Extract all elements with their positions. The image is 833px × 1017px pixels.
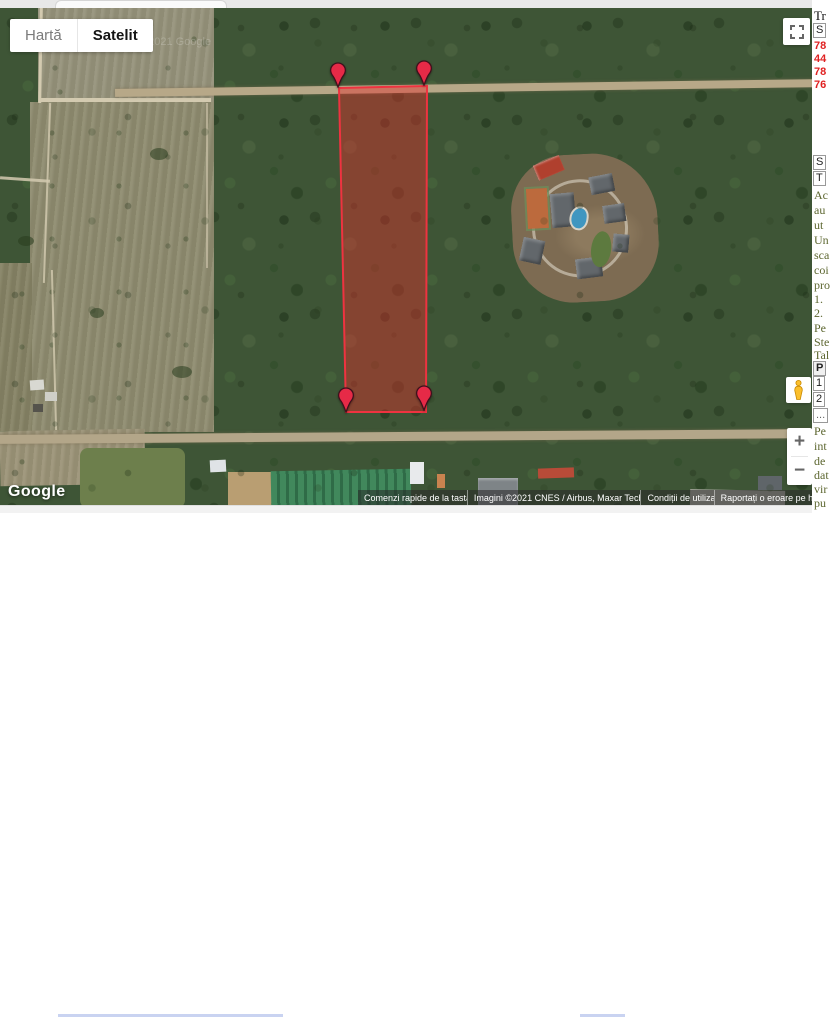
pegman-button[interactable] [786, 377, 811, 403]
page-top-strip [0, 0, 812, 8]
table-header-cell: T [813, 171, 826, 186]
tree-clump [90, 308, 104, 318]
terms-link[interactable]: Condiții de utilizare [640, 490, 713, 505]
small-building [30, 380, 45, 391]
small-building [437, 474, 445, 488]
small-building-roof [33, 404, 43, 412]
report-error-link[interactable]: Raportați o eroare pe hartă [714, 490, 812, 505]
corner-marker-bottom-right[interactable] [416, 385, 433, 411]
small-building [45, 392, 57, 401]
pegman-icon [792, 380, 805, 400]
map-type-control: Hartă Satelit [10, 19, 153, 52]
tree-clump [172, 366, 192, 378]
page-top-tab [55, 0, 227, 8]
farm-field-main [30, 102, 214, 432]
zoom-out-button[interactable]: − [787, 457, 812, 485]
map-canvas[interactable]: ©2021 Google Hartă Satelit + − Google Co… [0, 8, 812, 505]
green-field-bottom [80, 448, 185, 505]
table-header-cell: S [813, 155, 826, 170]
panel-text-fragment: coi [814, 263, 829, 278]
panel-text-fragment: ut [814, 218, 823, 233]
fullscreen-button[interactable] [783, 18, 810, 45]
estate-building [602, 203, 626, 224]
zoom-control: + − [787, 428, 812, 485]
page-below-map[interactable] [0, 505, 812, 513]
panel-text-fragment: au [814, 203, 825, 218]
google-logo[interactable]: Google [8, 483, 66, 501]
map-type-satellite-button[interactable]: Satelit [77, 19, 153, 52]
panel-text-fragment: int [814, 439, 827, 454]
table-row-cell: ... [813, 408, 828, 423]
corner-marker-bottom-left[interactable] [338, 387, 355, 413]
panel-text-fragment: dat [814, 468, 829, 483]
table-value-red: 76 [814, 79, 826, 91]
panel-text-fragment: sca [814, 248, 829, 263]
dark-building [758, 476, 782, 490]
dirt-path-horizontal [39, 98, 211, 102]
keyboard-shortcuts-link[interactable]: Comenzi rapide de la tastatură [358, 490, 467, 505]
table-value-red: 78 [814, 40, 826, 52]
estate-building [612, 233, 630, 252]
zoom-in-button[interactable]: + [787, 428, 812, 456]
panel-text-fragment: Pe [814, 321, 826, 336]
dirt-yard [228, 472, 272, 505]
panel-text-fragment: pu [814, 496, 826, 511]
panel-title-fragment: Tr [814, 8, 826, 24]
panel-text-fragment: pro [814, 278, 830, 293]
table-row-cell: 2 [813, 392, 825, 407]
imagery-credit: Imagini ©2021 CNES / Airbus, Maxar Techn… [467, 490, 641, 505]
table-row-cell: 1 [813, 376, 825, 391]
farm-field-left [0, 263, 32, 431]
fullscreen-icon [790, 25, 804, 39]
small-building [410, 462, 424, 484]
field-boundary-path [206, 103, 208, 268]
panel-text-fragment: Pe [814, 424, 826, 439]
right-panel-clipped: Tr S 78 44 78 76 S T Ac au ut Un sca coi… [812, 0, 833, 513]
panel-text-fragment: 1. [814, 292, 823, 307]
corner-marker-top-right[interactable] [416, 60, 433, 86]
small-building [210, 460, 227, 473]
tree-clump [18, 236, 34, 246]
table-header-cell: P [813, 361, 826, 376]
table-value-red: 78 [814, 66, 826, 78]
panel-text-fragment: Un [814, 233, 829, 248]
red-roof-long-building [538, 467, 574, 478]
panel-text-fragment: Ac [814, 188, 828, 203]
panel-text-fragment: de [814, 454, 825, 469]
table-value-red: 44 [814, 53, 826, 65]
tree-clump [150, 148, 168, 160]
estate-compound [508, 150, 662, 305]
estate-building [519, 237, 546, 265]
tennis-court [526, 188, 549, 229]
corner-marker-top-left[interactable] [330, 62, 347, 88]
parcel-polygon[interactable] [339, 86, 427, 412]
table-header-cell: S [813, 23, 826, 38]
panel-text-fragment: vir [814, 482, 827, 497]
panel-text-fragment: 2. [814, 306, 823, 321]
map-type-map-button[interactable]: Hartă [10, 19, 77, 52]
attribution-bar: Comenzi rapide de la tastatură Imagini ©… [358, 490, 812, 505]
